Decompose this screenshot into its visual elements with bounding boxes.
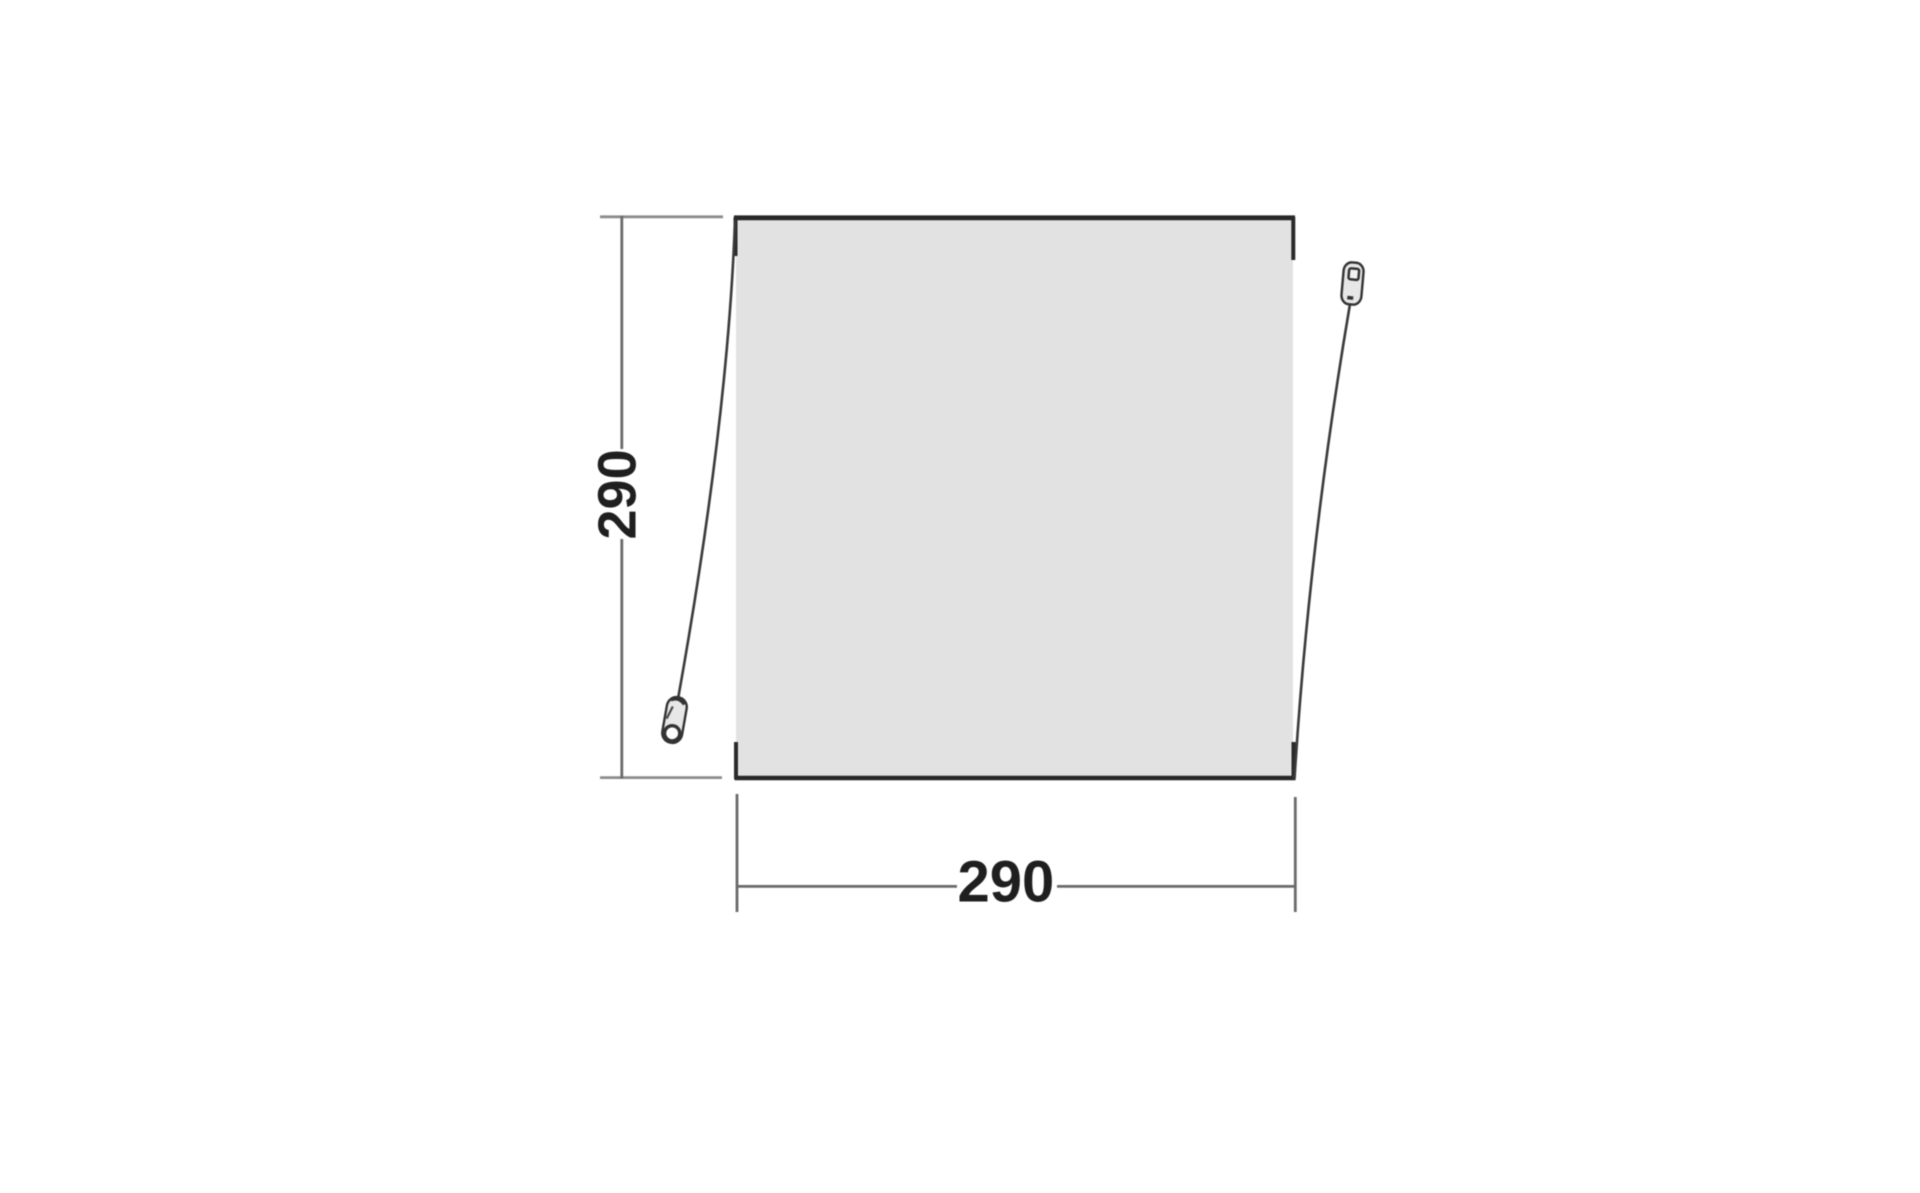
svg-text:290: 290: [958, 850, 1055, 915]
svg-text:290: 290: [588, 449, 648, 539]
